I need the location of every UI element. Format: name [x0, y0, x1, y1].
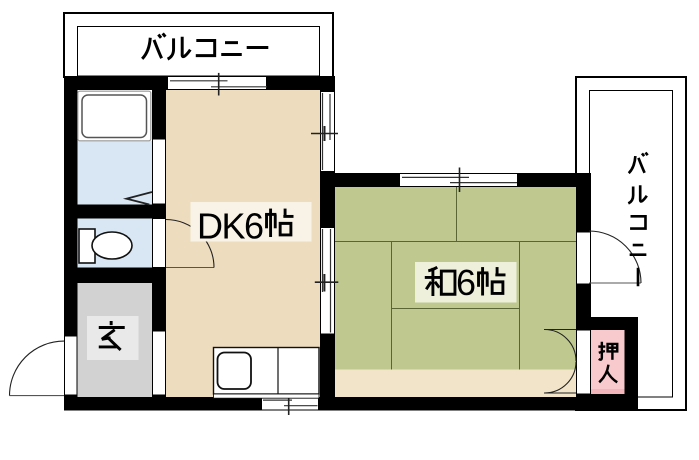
svg-text:DK6: DK6 — [197, 206, 263, 247]
svg-text:6: 6 — [456, 262, 476, 303]
